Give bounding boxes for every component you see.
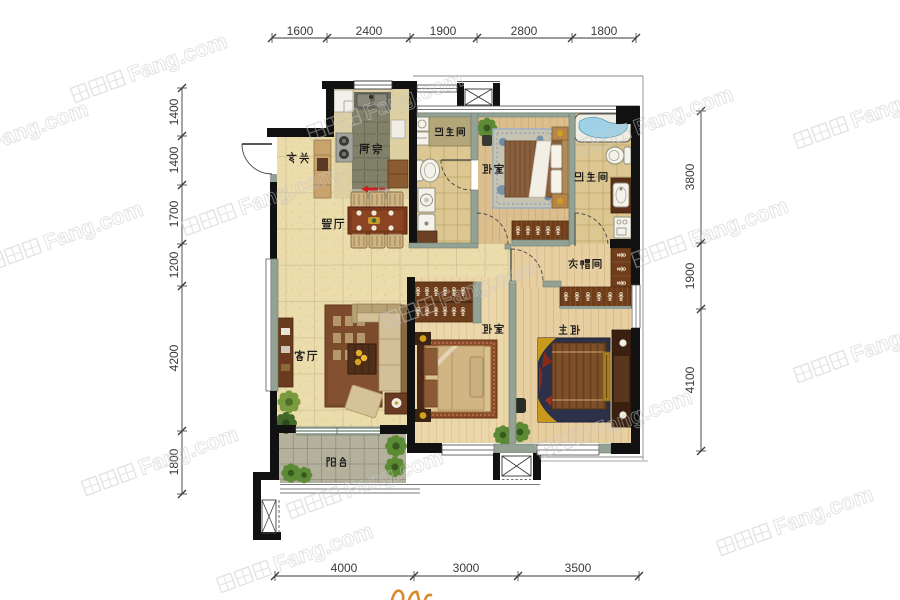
svg-text:3500: 3500 [565,561,592,575]
svg-text:1800: 1800 [591,24,618,38]
svg-text:4000: 4000 [331,561,358,575]
svg-text:3000: 3000 [453,561,480,575]
svg-text:1900: 1900 [430,24,457,38]
svg-text:4200: 4200 [167,344,181,371]
svg-text:1900: 1900 [683,262,697,289]
svg-text:3800: 3800 [683,163,697,190]
svg-text:1400: 1400 [167,146,181,173]
svg-text:1200: 1200 [167,251,181,278]
svg-text:1600: 1600 [287,24,314,38]
svg-text:1400: 1400 [167,98,181,125]
svg-text:1700: 1700 [167,200,181,227]
svg-text:2400: 2400 [356,24,383,38]
svg-text:2800: 2800 [511,24,538,38]
